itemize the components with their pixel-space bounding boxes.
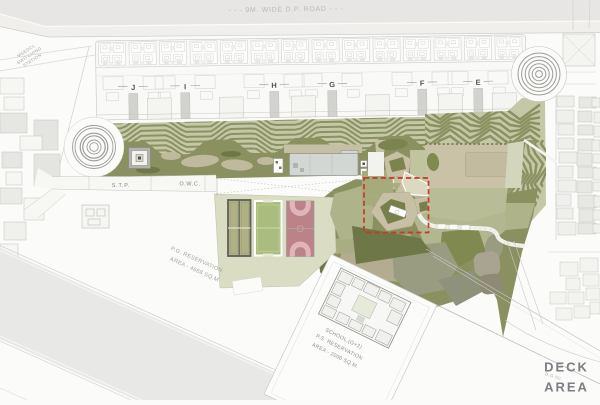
- svg-text:O.W.C.: O.W.C.: [180, 181, 201, 187]
- svg-text:J: J: [131, 83, 135, 92]
- svg-text:I: I: [184, 82, 186, 91]
- svg-text:AREA: AREA: [544, 380, 589, 395]
- svg-text:F: F: [420, 79, 425, 88]
- svg-text:E: E: [476, 78, 481, 87]
- svg-text:H: H: [271, 81, 277, 90]
- svg-text:DECK: DECK: [544, 360, 589, 375]
- svg-text:G: G: [329, 80, 335, 89]
- svg-text:S.T.P.: S.T.P.: [112, 183, 130, 189]
